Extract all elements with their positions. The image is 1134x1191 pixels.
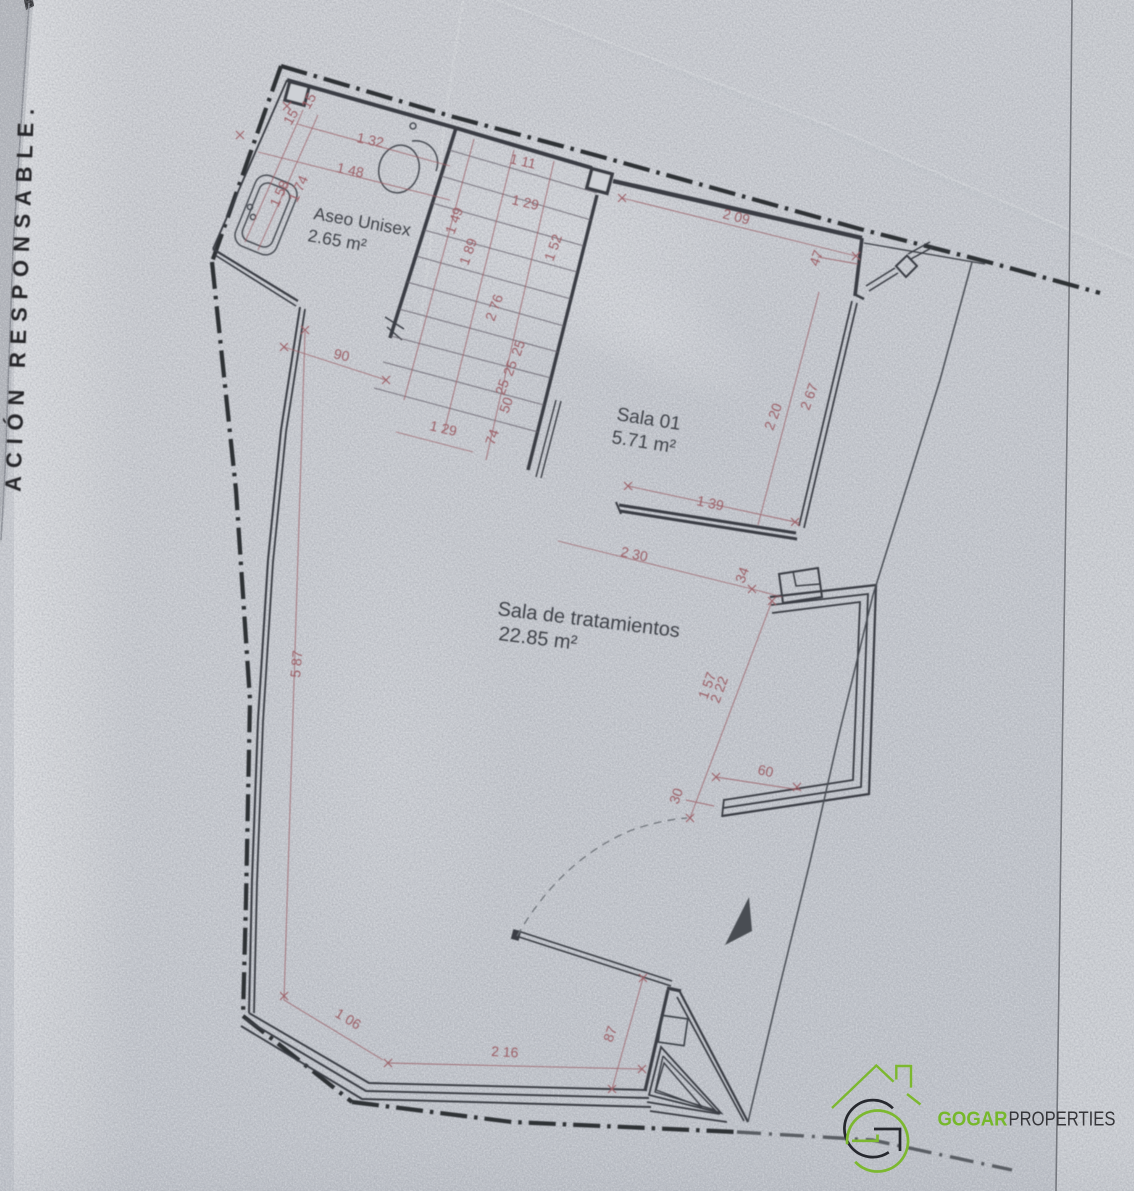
svg-text:2 16: 2 16 [491, 1043, 519, 1060]
svg-text:PROPERTIES: PROPERTIES [1009, 1108, 1116, 1131]
svg-text:5 87: 5 87 [287, 650, 305, 679]
svg-text:GOGAR: GOGAR [938, 1108, 1008, 1131]
